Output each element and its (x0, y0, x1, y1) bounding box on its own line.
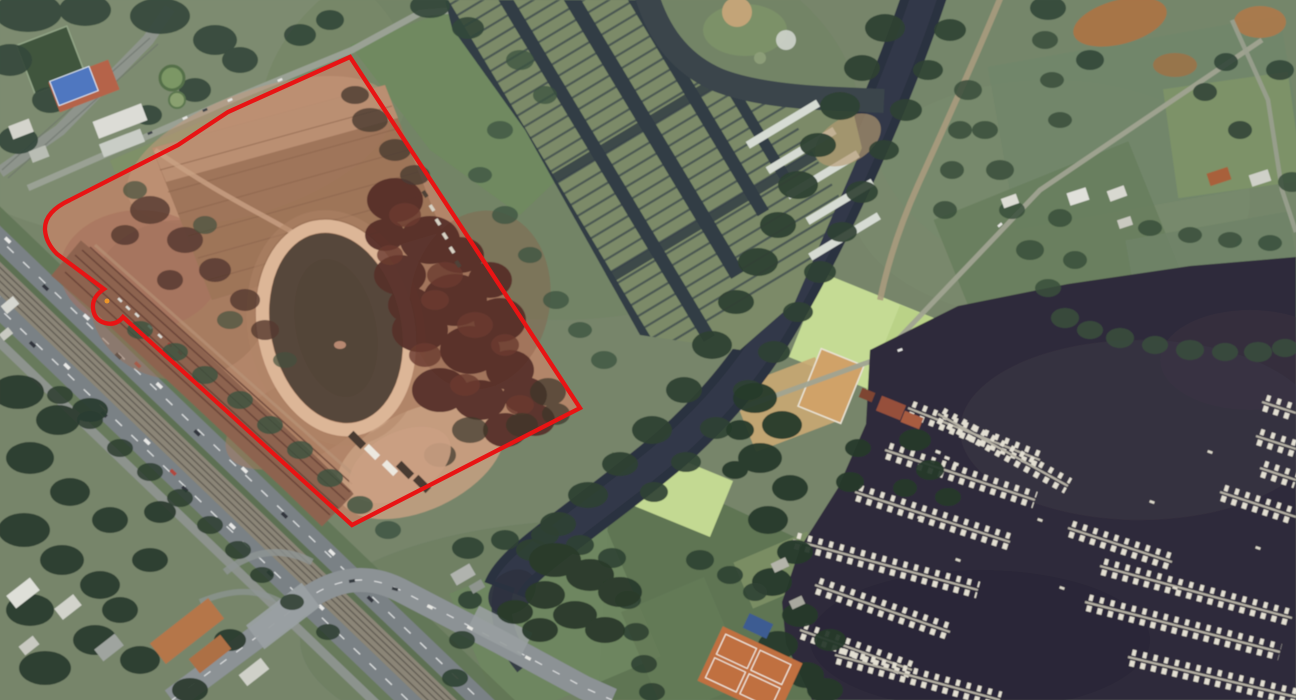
satellite-map-screenshot (0, 0, 1296, 700)
terrain-group (0, 0, 1296, 700)
garden-ring-1 (160, 66, 184, 90)
garden-ring-2 (169, 92, 185, 108)
infield-dot (334, 341, 346, 349)
tr-dirt-2 (1234, 6, 1286, 38)
notch-marker (105, 299, 110, 304)
satellite-image (0, 0, 1296, 700)
round-pad-2 (776, 30, 796, 50)
tr-dirt-3 (1153, 53, 1197, 77)
round-pad-3 (754, 52, 766, 64)
